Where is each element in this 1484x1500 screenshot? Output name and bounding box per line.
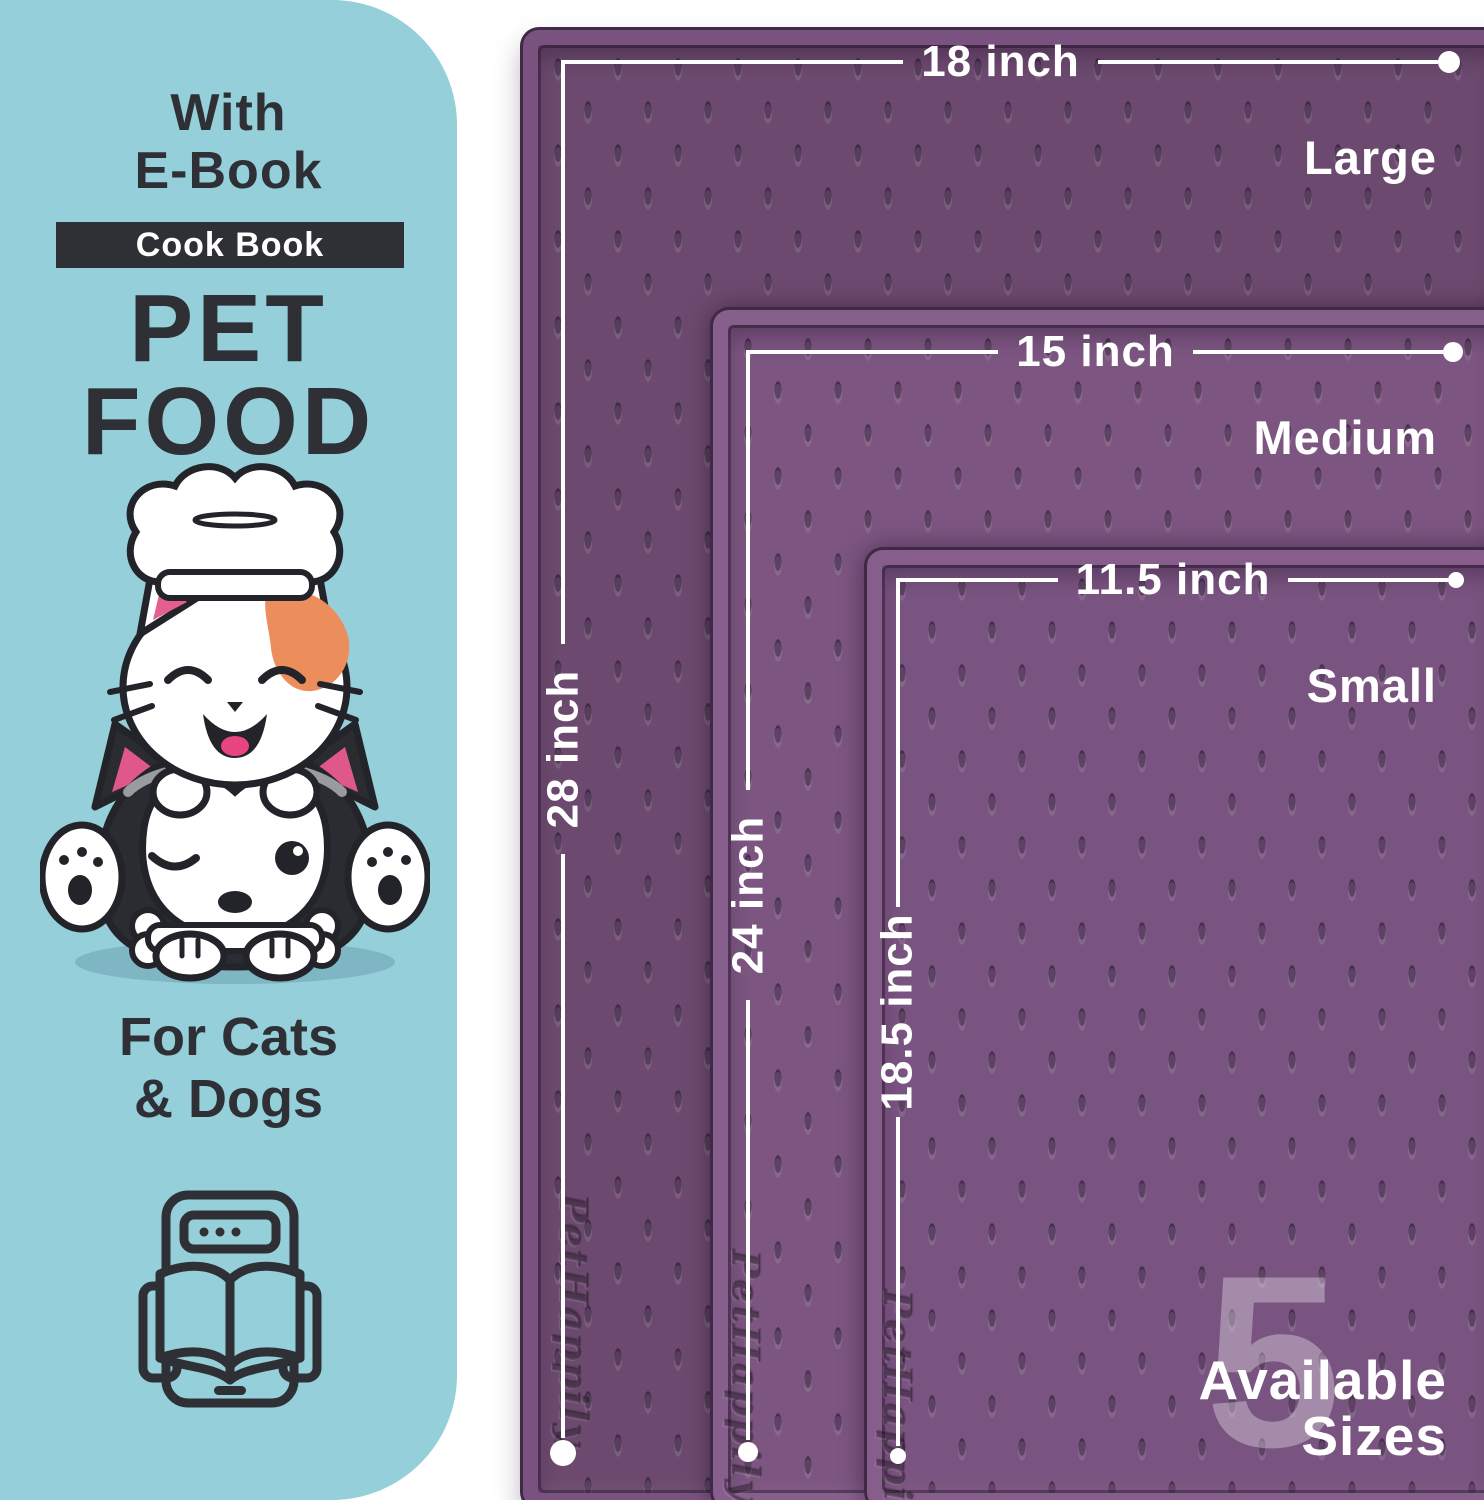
measure-line — [1288, 578, 1448, 582]
measure-endpoint-dot — [1443, 342, 1463, 362]
measure-line — [561, 60, 565, 644]
subtitle-text: For Cats & Dogs — [0, 1006, 457, 1130]
size-label-medium: Medium — [1253, 410, 1437, 465]
measure-width-large: 18 inch — [563, 48, 1460, 76]
measure-width-small: 11.5 inch — [898, 566, 1464, 594]
size-label-small: Small — [1307, 658, 1437, 713]
measure-length-large-label: 28 inch — [538, 670, 588, 829]
measure-line — [896, 578, 900, 907]
measure-width-medium-label: 15 inch — [998, 327, 1193, 377]
cat-chef-dog-illustration — [40, 462, 430, 992]
measure-length-large: 28 inch — [549, 60, 577, 1466]
measure-endpoint-dot — [550, 1440, 576, 1466]
measure-endpoint-dot — [738, 1442, 758, 1462]
measure-endpoint-dot — [1448, 572, 1464, 588]
measure-line — [748, 350, 998, 354]
cook-book-badge-label: Cook Book — [136, 226, 324, 265]
measure-length-medium-label: 24 inch — [723, 816, 773, 975]
measure-endpoint-dot — [890, 1448, 906, 1464]
measure-line — [1098, 60, 1438, 64]
subtitle-line1: For Cats — [0, 1006, 457, 1068]
size-label-large: Large — [1304, 130, 1437, 185]
measure-line — [898, 578, 1058, 582]
title-line2: FOOD — [0, 375, 457, 468]
measure-line — [896, 1117, 900, 1446]
subtitle-line2: & Dogs — [0, 1068, 457, 1130]
left-panel: With E-Book Cook Book PET FOOD — [0, 0, 457, 1500]
measure-line — [561, 854, 565, 1438]
eyebrow-line1: With — [0, 84, 457, 142]
measure-line — [746, 350, 750, 790]
measure-length-small-label: 18.5 inch — [873, 913, 923, 1110]
cook-book-badge: Cook Book — [56, 222, 404, 268]
measure-length-small: 18.5 inch — [884, 578, 912, 1464]
title-line1: PET — [0, 282, 457, 375]
available-sizes-line2: Sizes — [1199, 1408, 1447, 1464]
measure-line — [1193, 350, 1443, 354]
measure-endpoint-dot — [1438, 51, 1460, 73]
available-sizes-text: Available Sizes — [1199, 1352, 1447, 1464]
pet-food-title: PET FOOD — [0, 282, 457, 468]
measure-line — [563, 60, 903, 64]
measure-line — [746, 1000, 750, 1440]
product-infographic: With E-Book Cook Book PET FOOD — [0, 0, 1484, 1500]
measure-length-medium: 24 inch — [734, 350, 762, 1462]
available-sizes-line1: Available — [1199, 1352, 1447, 1408]
measure-width-large-label: 18 inch — [903, 37, 1098, 87]
eyebrow-line2: E-Book — [0, 142, 457, 200]
measure-width-small-label: 11.5 inch — [1058, 555, 1289, 605]
eyebrow-text: With E-Book — [0, 84, 457, 200]
measure-width-medium: 15 inch — [748, 338, 1463, 366]
ebook-tablet-open-book-icon — [138, 1190, 322, 1410]
